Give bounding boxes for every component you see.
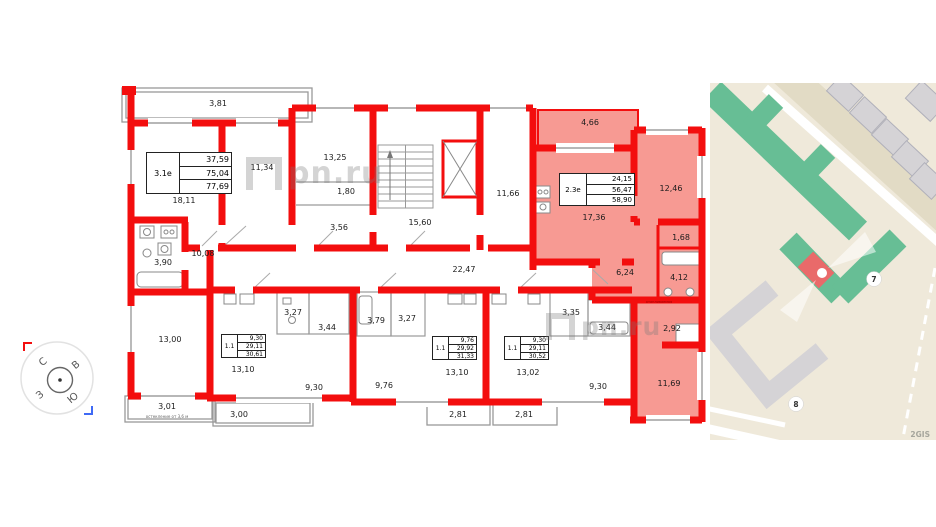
room-area-label: 15,60 — [409, 218, 432, 227]
apartment-total-area: 58,90 — [587, 195, 634, 205]
apartment-area: 29,11 — [521, 345, 548, 353]
room-area-label: 11,34 — [251, 163, 274, 172]
apartment-id: 3.1е — [147, 153, 180, 193]
apartment-area: 29,92 — [449, 345, 476, 353]
apartment-area: 29,11 — [238, 343, 265, 351]
room-area-label: 9,76 — [375, 381, 393, 390]
room-area-label: 13,02 — [517, 368, 540, 377]
apartment-living-area: 9,30 — [521, 337, 548, 345]
floorplan-page: 3,81 18,11 11,34 13,25 1,80 3,56 10,08 3… — [0, 0, 936, 527]
stove-icon — [240, 294, 254, 304]
apartment-info-table: 3.1е 37,59 75,04 77,69 — [146, 152, 232, 194]
apartment-living-area: 37,59 — [180, 153, 231, 167]
location-map[interactable]: 7 8 2GIS — [705, 68, 936, 448]
compass-rose: С В Ю З — [21, 342, 93, 414]
stove-icon — [161, 226, 177, 238]
room-area-label: 3,56 — [330, 223, 348, 232]
room-area-label: 13,00 — [159, 335, 182, 344]
apartment-info-table: 1.1 9,30 29,11 30,52 — [504, 336, 549, 360]
room-area-label: 13,10 — [446, 368, 469, 377]
room-area-label: 2,81 — [515, 410, 533, 419]
room-area-label: 1,68 — [672, 233, 690, 242]
room-area-label: 11,69 — [658, 379, 681, 388]
compass-blue-bracket — [84, 406, 92, 414]
apartment-total-area: 30,61 — [238, 351, 265, 358]
room-area-label: 4,12 — [670, 273, 688, 282]
compass-red-bracket — [24, 343, 32, 351]
room-area-label: 22,47 — [453, 265, 476, 274]
balcony-outlines — [122, 88, 557, 426]
map-building-badge-label: 7 — [871, 275, 876, 284]
map-attribution: 2GIS — [910, 430, 930, 439]
apartment-living-area: 9,76 — [449, 337, 476, 345]
apartment-total-area: 31,33 — [449, 353, 476, 360]
room-area-label: 2,81 — [449, 410, 467, 419]
room-area-label: 3,27 — [284, 308, 302, 317]
apartment-id: 1.1 — [222, 335, 238, 357]
map-building-badge-label: 8 — [793, 400, 798, 409]
room-area-label: 3,90 — [154, 258, 172, 267]
apartment-total-area: 30,52 — [521, 353, 548, 360]
room-area-label: 17,36 — [583, 213, 606, 222]
room-area-label: 18,11 — [173, 196, 196, 205]
room-area-label: 4,66 — [581, 118, 599, 127]
room-area-label: 11,66 — [497, 189, 520, 198]
room-area-label: 12,46 — [660, 184, 683, 193]
room-area-label: 1,80 — [337, 187, 355, 196]
room-area-label: 3,44 — [598, 323, 616, 332]
room-area-label: 13,10 — [232, 365, 255, 374]
room-area-label: 3,27 — [398, 314, 416, 323]
apartment-id: 1.1 — [505, 337, 521, 359]
heated-note: отапливаемая — [646, 300, 672, 304]
apartment-total-area: 77,69 — [180, 180, 231, 193]
wall-cap — [122, 86, 136, 95]
stove-icon — [448, 294, 462, 304]
apartment-id: 2.3е — [560, 174, 587, 205]
room-area-label: 9,30 — [305, 383, 323, 392]
stove-icon — [492, 294, 506, 304]
room-area-label: 3,79 — [367, 316, 385, 325]
room-area-label: 3,81 — [209, 99, 227, 108]
floorplan-drawing: 3,81 18,11 11,34 13,25 1,80 3,56 10,08 3… — [0, 0, 936, 527]
room-area-label: 6,24 — [616, 268, 634, 277]
sink-icon — [464, 294, 476, 304]
stairs-icon — [378, 145, 433, 208]
room-area-label: 13,25 — [324, 153, 347, 162]
room-area-label: 3,44 — [318, 323, 336, 332]
room-area-label: 10,08 — [192, 249, 215, 258]
map-location-marker — [817, 268, 827, 278]
apartment-living-area: 9,30 — [238, 335, 265, 343]
apartment-info-table: 2.3е 24,15 56,47 58,90 — [559, 173, 635, 206]
room-area-label: 3,35 — [562, 308, 580, 317]
room-area-label: 3,01 — [158, 402, 176, 411]
apartment-area: 75,04 — [180, 167, 231, 181]
room-area-label: 9,30 — [589, 382, 607, 391]
elevator-icon — [443, 141, 477, 197]
apartment-area: 56,47 — [587, 185, 634, 196]
apartment-living-area: 24,15 — [587, 174, 634, 185]
sink-icon — [528, 294, 540, 304]
glazing-note: остекление от 3,6 м — [146, 414, 189, 419]
apartment-info-table: 1.1 9,76 29,92 31,33 — [432, 336, 477, 360]
sink-icon — [224, 294, 236, 304]
apartment-info-table: 1.1 9,30 29,11 30,61 — [221, 334, 266, 358]
room-area-label: 2,92 — [663, 324, 681, 333]
room-area-label: 3,00 — [230, 410, 248, 419]
apartment-id: 1.1 — [433, 337, 449, 359]
